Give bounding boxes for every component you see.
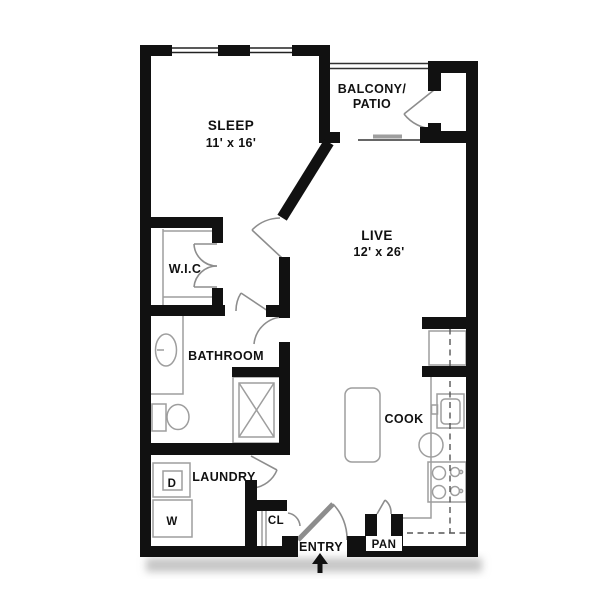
floor-plan-page: SLEEP 11' x 16' BALCONY/ PATIO LIVE 12' …: [0, 0, 600, 600]
wall-balcony-bottom: [420, 131, 478, 143]
sleep-room-dimensions: 11' x 16': [206, 136, 257, 150]
wall-sleep-right: [319, 45, 330, 143]
sleep-door-arc: [252, 218, 282, 258]
wall-bottom-left: [140, 546, 285, 557]
wall-top-sleep: [140, 45, 330, 56]
wall-laundry-right: [245, 480, 257, 557]
window: [172, 45, 218, 56]
wall-left: [140, 45, 151, 557]
bathroom-door-leaf: [236, 293, 268, 311]
wall-closet-top: [245, 500, 287, 511]
wall-wic-top: [140, 217, 223, 228]
wall-wic-jamb-lower: [212, 288, 223, 305]
pantry-label: PAN: [372, 539, 397, 551]
closet-label: CL: [268, 515, 284, 527]
kitchen-counter-edge: [403, 377, 431, 518]
wall-bathroom-top: [140, 305, 225, 316]
dryer-label: D: [168, 478, 177, 490]
balcony-label-line2: PATIO: [353, 97, 391, 111]
entry-label: ENTRY: [299, 540, 343, 554]
live-room-dimensions: 12' x 26': [353, 245, 404, 259]
labels: SLEEP 11' x 16' BALCONY/ PATIO LIVE 12' …: [166, 82, 423, 554]
stove-burner: [433, 467, 446, 480]
stove-burner: [451, 487, 460, 496]
balcony-label-line1: BALCONY/: [338, 82, 407, 96]
entry-door-arc: [333, 504, 347, 540]
shower-x-mark: [239, 383, 274, 437]
wall-bathroom-right: [279, 342, 290, 455]
pantry-door-arc: [377, 500, 391, 514]
toilet-bowl: [167, 405, 189, 430]
stove-burner: [451, 468, 460, 477]
kitchen-island: [345, 388, 380, 462]
bathroom-label: BATHROOM: [188, 349, 264, 363]
wall-fridge-nook-lower: [422, 366, 466, 377]
stove-knob: [459, 470, 462, 473]
sleep-room-label: SLEEP: [208, 118, 254, 133]
wall-wic-jamb-upper: [212, 228, 223, 243]
closet-shelf-lines: [262, 511, 266, 546]
entry-door-leaf: [298, 504, 333, 540]
plan-drop-shadow: [146, 558, 482, 572]
wic-label: W.I.C: [169, 262, 202, 276]
wall-sleep-diagonal: [285, 147, 326, 213]
bathroom-door-arc: [254, 317, 284, 344]
wall-fridge-nook-upper: [422, 317, 466, 329]
balcony-railing: [330, 64, 428, 69]
fixtures: [150, 137, 466, 547]
stove-knob: [459, 489, 462, 492]
cook-label: COOK: [384, 412, 423, 426]
toilet-tank: [152, 404, 166, 431]
washer-label: W: [166, 516, 177, 528]
wall-entry-right-nub: [347, 536, 366, 546]
wall-bathroom-nub: [266, 305, 282, 317]
wall-shower-top: [232, 367, 290, 377]
wall-storage-jamb-upper: [428, 73, 441, 91]
refrigerator: [429, 331, 466, 365]
closet-door-arc: [288, 513, 300, 526]
stove-burner: [433, 486, 446, 499]
window: [250, 45, 292, 56]
live-room-label: LIVE: [361, 228, 393, 243]
laundry-label: LAUNDRY: [192, 470, 256, 484]
wall-bathroom-bottom: [140, 443, 290, 455]
wall-storage-top: [428, 61, 478, 73]
floor-plan: SLEEP 11' x 16' BALCONY/ PATIO LIVE 12' …: [0, 0, 600, 600]
wall-sleep-corner-stub: [319, 132, 340, 143]
